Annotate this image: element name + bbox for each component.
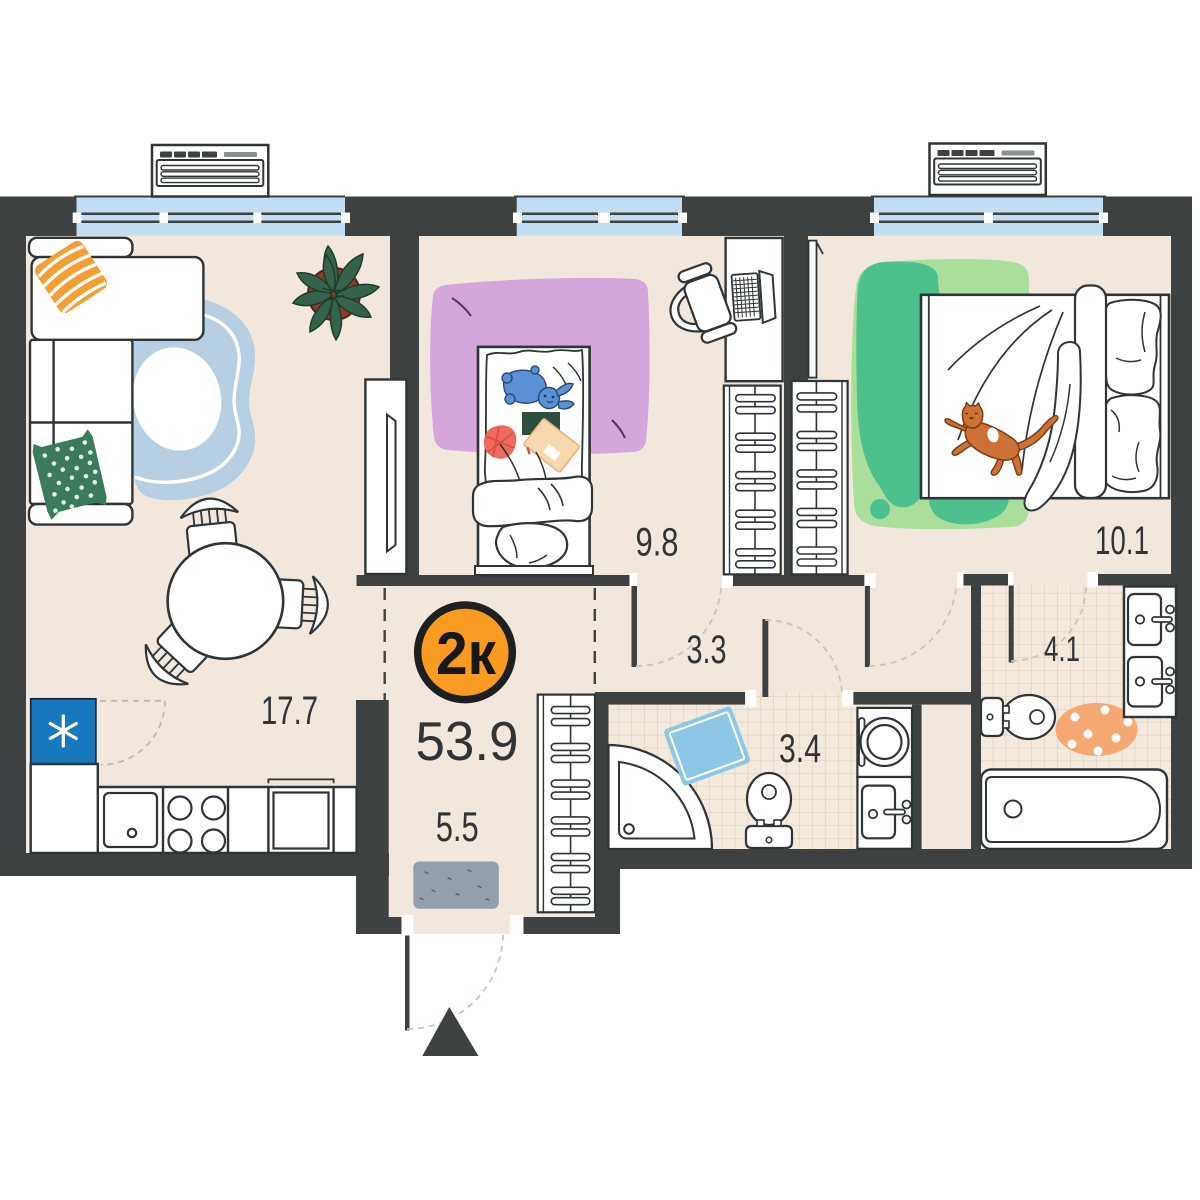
svg-text:53.9: 53.9 [416,710,519,772]
svg-text:17.7: 17.7 [261,689,318,733]
svg-text:4.1: 4.1 [1044,630,1080,669]
svg-text:5.5: 5.5 [436,803,479,850]
svg-text:3.4: 3.4 [779,727,821,771]
svg-text:9.8: 9.8 [636,521,679,565]
svg-text:10.1: 10.1 [1095,519,1149,563]
svg-text:2к: 2к [436,620,497,687]
svg-text:3.3: 3.3 [687,628,727,672]
